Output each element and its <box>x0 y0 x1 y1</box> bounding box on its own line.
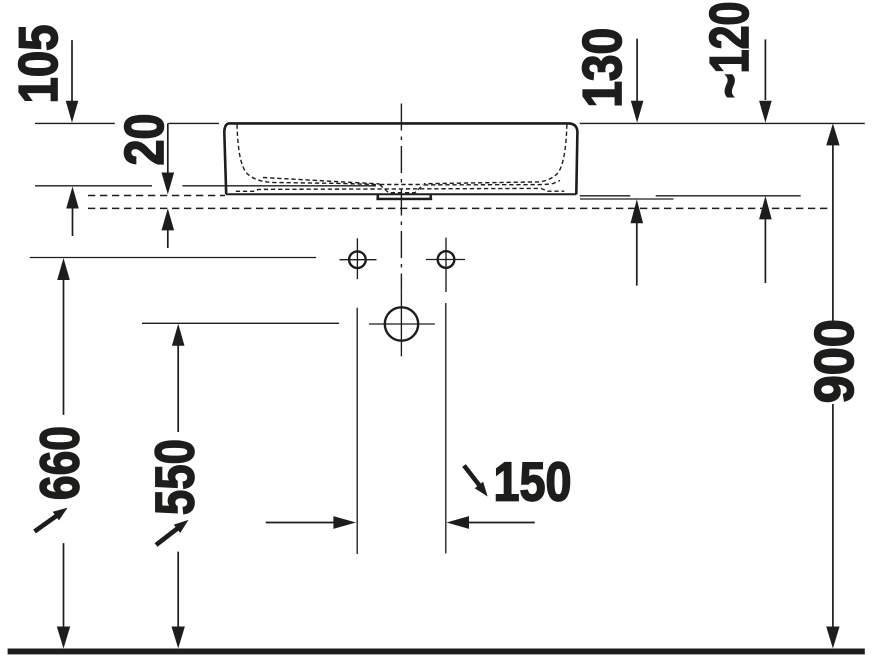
svg-text:130: 130 <box>571 28 633 108</box>
svg-text:900: 900 <box>803 319 865 403</box>
svg-text:105: 105 <box>7 25 69 104</box>
svg-text:660: 660 <box>29 426 91 500</box>
svg-text:~120: ~120 <box>698 2 760 99</box>
svg-text:20: 20 <box>113 114 175 166</box>
svg-text:550: 550 <box>143 439 205 515</box>
svg-text:150: 150 <box>494 451 572 513</box>
